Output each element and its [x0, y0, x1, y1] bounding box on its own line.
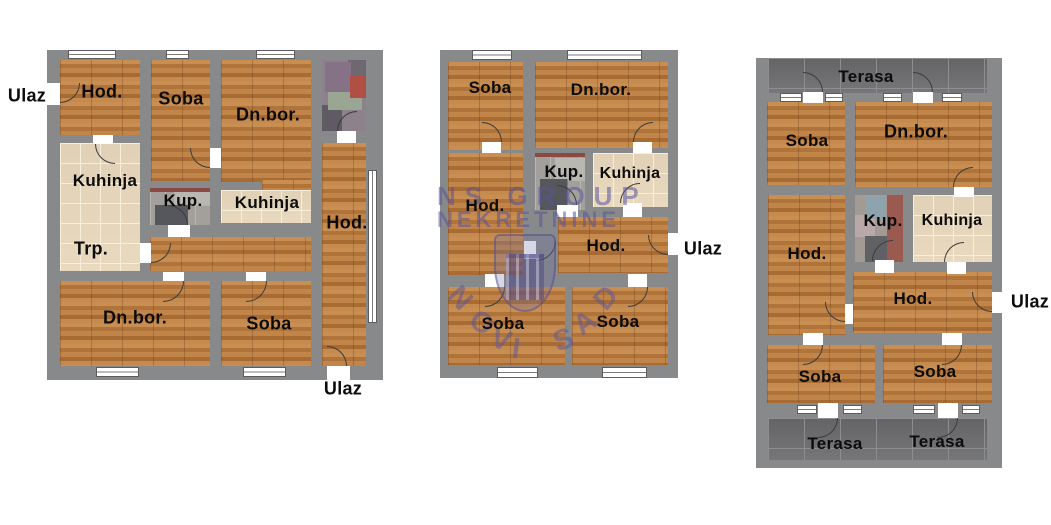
room-label: Terasa: [909, 432, 964, 452]
room-label: Soba: [786, 131, 829, 151]
window-icon: [472, 50, 512, 60]
door-opening: [875, 260, 894, 273]
window-icon: [942, 93, 962, 102]
room-label: Kuhinja: [235, 193, 299, 213]
room-label: Soba: [799, 367, 842, 387]
room-label: Hod.: [81, 82, 122, 103]
window-icon: [166, 50, 189, 59]
door-opening: [818, 403, 838, 418]
room-label: Soba: [246, 314, 291, 335]
door-opening: [210, 148, 221, 168]
room-label: Trp.: [74, 239, 108, 260]
door-opening: [942, 333, 962, 345]
door-opening: [557, 205, 578, 217]
room-label: Dn.bor.: [236, 105, 300, 126]
door-opening: [947, 262, 966, 274]
door-opening: [954, 187, 974, 197]
floorplan-canvas: NS GROUP NEKRETNINE NOVISAD UlazHod.Soba…: [0, 0, 1051, 525]
room-label: Terasa: [838, 67, 893, 87]
room-label: Kuhinja: [600, 165, 661, 183]
room-floor-wood: [262, 180, 311, 190]
window-icon: [797, 405, 817, 414]
room-label: Ulaz: [1011, 292, 1049, 313]
door-opening: [913, 92, 933, 103]
room-label: Kuhinja: [73, 171, 137, 191]
door-opening: [845, 304, 853, 324]
door-opening: [633, 142, 652, 153]
room-label: Ulaz: [324, 379, 362, 400]
room-label: Soba: [469, 78, 512, 98]
door-opening: [992, 292, 1002, 313]
window-icon: [825, 93, 843, 102]
door-opening: [93, 135, 113, 144]
window-icon: [962, 405, 980, 414]
room-label: Soba: [597, 312, 640, 332]
room-label: Kup.: [545, 162, 584, 182]
door-opening: [163, 272, 184, 281]
room-label: Soba: [914, 362, 957, 382]
room-floor-wood: [150, 237, 311, 271]
window-icon: [602, 367, 647, 378]
window-icon: [256, 50, 295, 59]
window-icon: [368, 170, 377, 323]
room-label: Soba: [158, 89, 203, 110]
door-opening: [628, 274, 647, 287]
door-opening: [938, 403, 958, 418]
room-label: Dn.bor.: [571, 80, 632, 100]
window-icon: [780, 93, 802, 102]
room-label: Kup.: [864, 211, 903, 231]
room-label: Ulaz: [8, 86, 46, 107]
room-label: Hod.: [326, 213, 367, 234]
door-opening: [168, 225, 190, 237]
room-label: Dn.bor.: [884, 122, 948, 143]
window-icon: [68, 50, 116, 59]
door-opening: [140, 243, 151, 263]
window-icon: [497, 367, 538, 378]
door-opening: [482, 142, 501, 153]
door-opening: [803, 92, 823, 103]
door-opening: [47, 83, 60, 105]
door-opening: [485, 274, 504, 287]
door-opening: [623, 203, 642, 217]
window-icon: [913, 405, 935, 414]
door-opening: [337, 131, 356, 143]
room-label: Hod.: [788, 244, 827, 264]
room-label: Hod.: [894, 289, 933, 309]
window-icon: [843, 405, 862, 414]
room-label: Kup.: [164, 191, 203, 211]
room-label: Ulaz: [684, 239, 722, 260]
door-opening: [246, 272, 266, 281]
door-opening: [524, 241, 536, 259]
room-label: Terasa: [807, 434, 862, 454]
room-label: Dn.bor.: [103, 308, 167, 329]
room-label: Hod.: [466, 196, 505, 216]
window-icon: [883, 93, 902, 102]
room-label: Hod.: [587, 236, 626, 256]
window-icon: [243, 367, 286, 377]
room-floor-wood: [322, 143, 366, 366]
door-opening: [668, 233, 678, 255]
door-opening: [803, 333, 823, 345]
window-icon: [96, 367, 139, 377]
room-label: Kuhinja: [922, 212, 983, 230]
room-label: Soba: [482, 314, 525, 334]
window-icon: [567, 50, 642, 60]
